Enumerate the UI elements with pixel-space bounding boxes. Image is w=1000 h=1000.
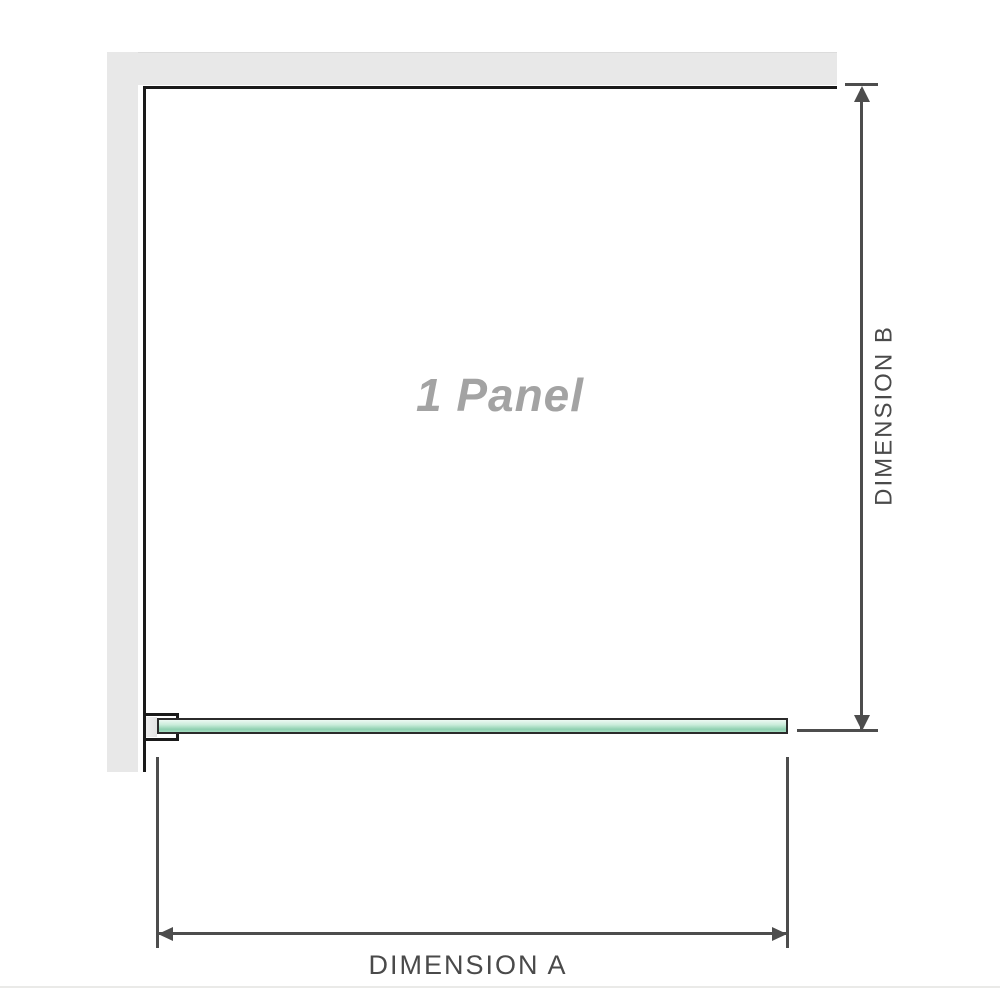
arrow-down-icon — [854, 715, 870, 731]
bottom-separator — [0, 986, 1000, 988]
arrow-up-icon — [854, 86, 870, 102]
dim-a-tick-left — [156, 757, 159, 948]
panel-label: 1 Panel — [143, 370, 857, 420]
bracket-spacer — [146, 717, 157, 737]
dim-a-line — [158, 932, 787, 935]
arrow-left-icon — [158, 927, 173, 941]
dim-a-label: DIMENSION A — [268, 950, 668, 980]
dim-a-tick-right — [786, 757, 789, 948]
wall-top — [107, 52, 837, 85]
wall-left — [107, 52, 138, 772]
arrow-right-icon — [772, 927, 787, 941]
glass-panel — [157, 718, 788, 734]
dim-b-line — [860, 89, 863, 731]
dim-b-label: DIMENSION B — [872, 296, 897, 536]
panel-outline — [143, 86, 837, 772]
